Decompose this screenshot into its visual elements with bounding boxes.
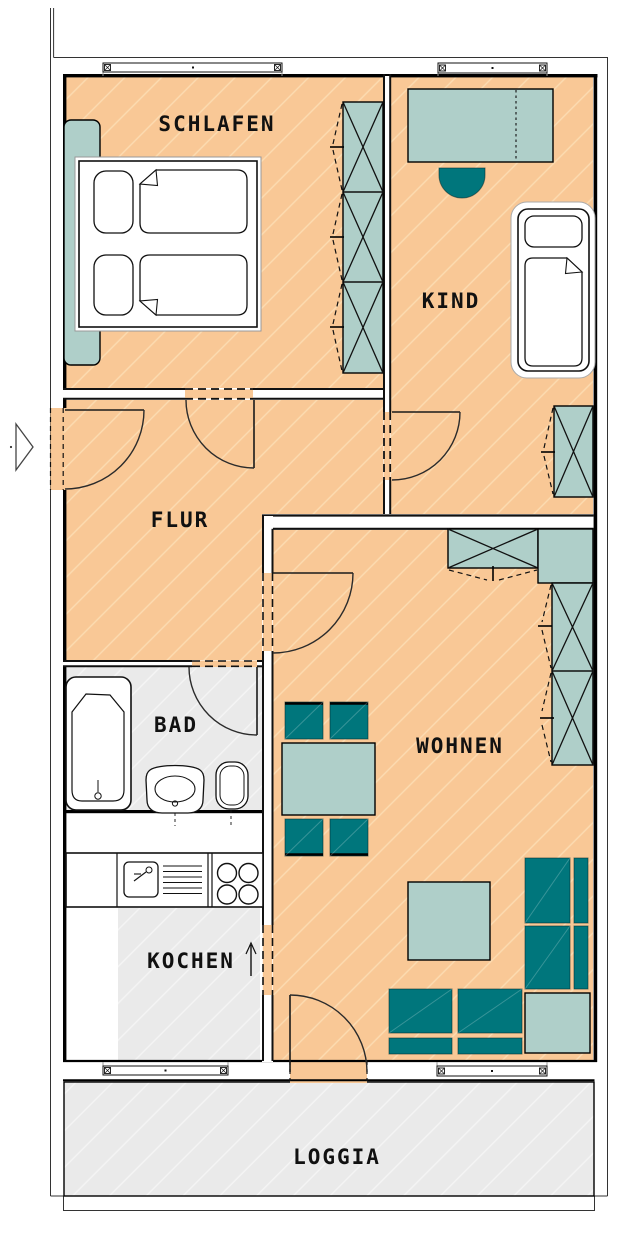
sofa-back: [574, 926, 588, 989]
wall-flur-wohnen: [262, 516, 273, 1063]
wall-schlafen-kind: [383, 74, 391, 514]
wall-schlafen-flur: [63, 389, 383, 399]
wall-top: [63, 74, 598, 77]
coffee-table: [408, 882, 490, 960]
desk: [408, 89, 553, 162]
label-kochen: KOCHEN: [147, 949, 235, 973]
label-flur: FLUR: [151, 508, 210, 532]
wall-flur-bad: [63, 661, 262, 668]
floorplan: SCHLAFEN KIND FLUR BAD WOHNEN KOCHEN LOG…: [0, 0, 629, 1230]
floor-kochen: [118, 908, 260, 1060]
label-wohnen: WOHNEN: [416, 734, 504, 758]
window-wohnen: [437, 1062, 547, 1076]
window-kochen: [103, 1062, 228, 1075]
sofa-back: [574, 858, 588, 923]
kitchen-sink: [124, 862, 158, 897]
single-bed: [511, 202, 595, 378]
pillow: [94, 255, 133, 315]
sofa-back: [389, 1038, 452, 1054]
floor-loggia: [64, 1082, 594, 1196]
label-kind: KIND: [422, 289, 481, 313]
floorplan-drawing: SCHLAFEN KIND FLUR BAD WOHNEN KOCHEN LOG…: [0, 0, 629, 1230]
bathtub: [66, 677, 131, 810]
sofa-back: [458, 1038, 522, 1054]
label-bad: BAD: [154, 713, 198, 737]
label-schlafen: SCHLAFEN: [158, 112, 275, 136]
side-table: [525, 993, 590, 1053]
pillow: [94, 171, 133, 233]
pillow: [525, 216, 582, 247]
entrance-threshold: [51, 408, 64, 490]
label-loggia: LOGGIA: [293, 1145, 381, 1169]
duvet: [525, 258, 582, 366]
washbasin: [146, 766, 204, 827]
entrance-arrow-icon: [10, 424, 33, 470]
double-bed: [75, 157, 261, 331]
toilet: [216, 762, 248, 826]
wall-kind-wohnen: [262, 516, 594, 530]
dining-table: [282, 743, 375, 815]
